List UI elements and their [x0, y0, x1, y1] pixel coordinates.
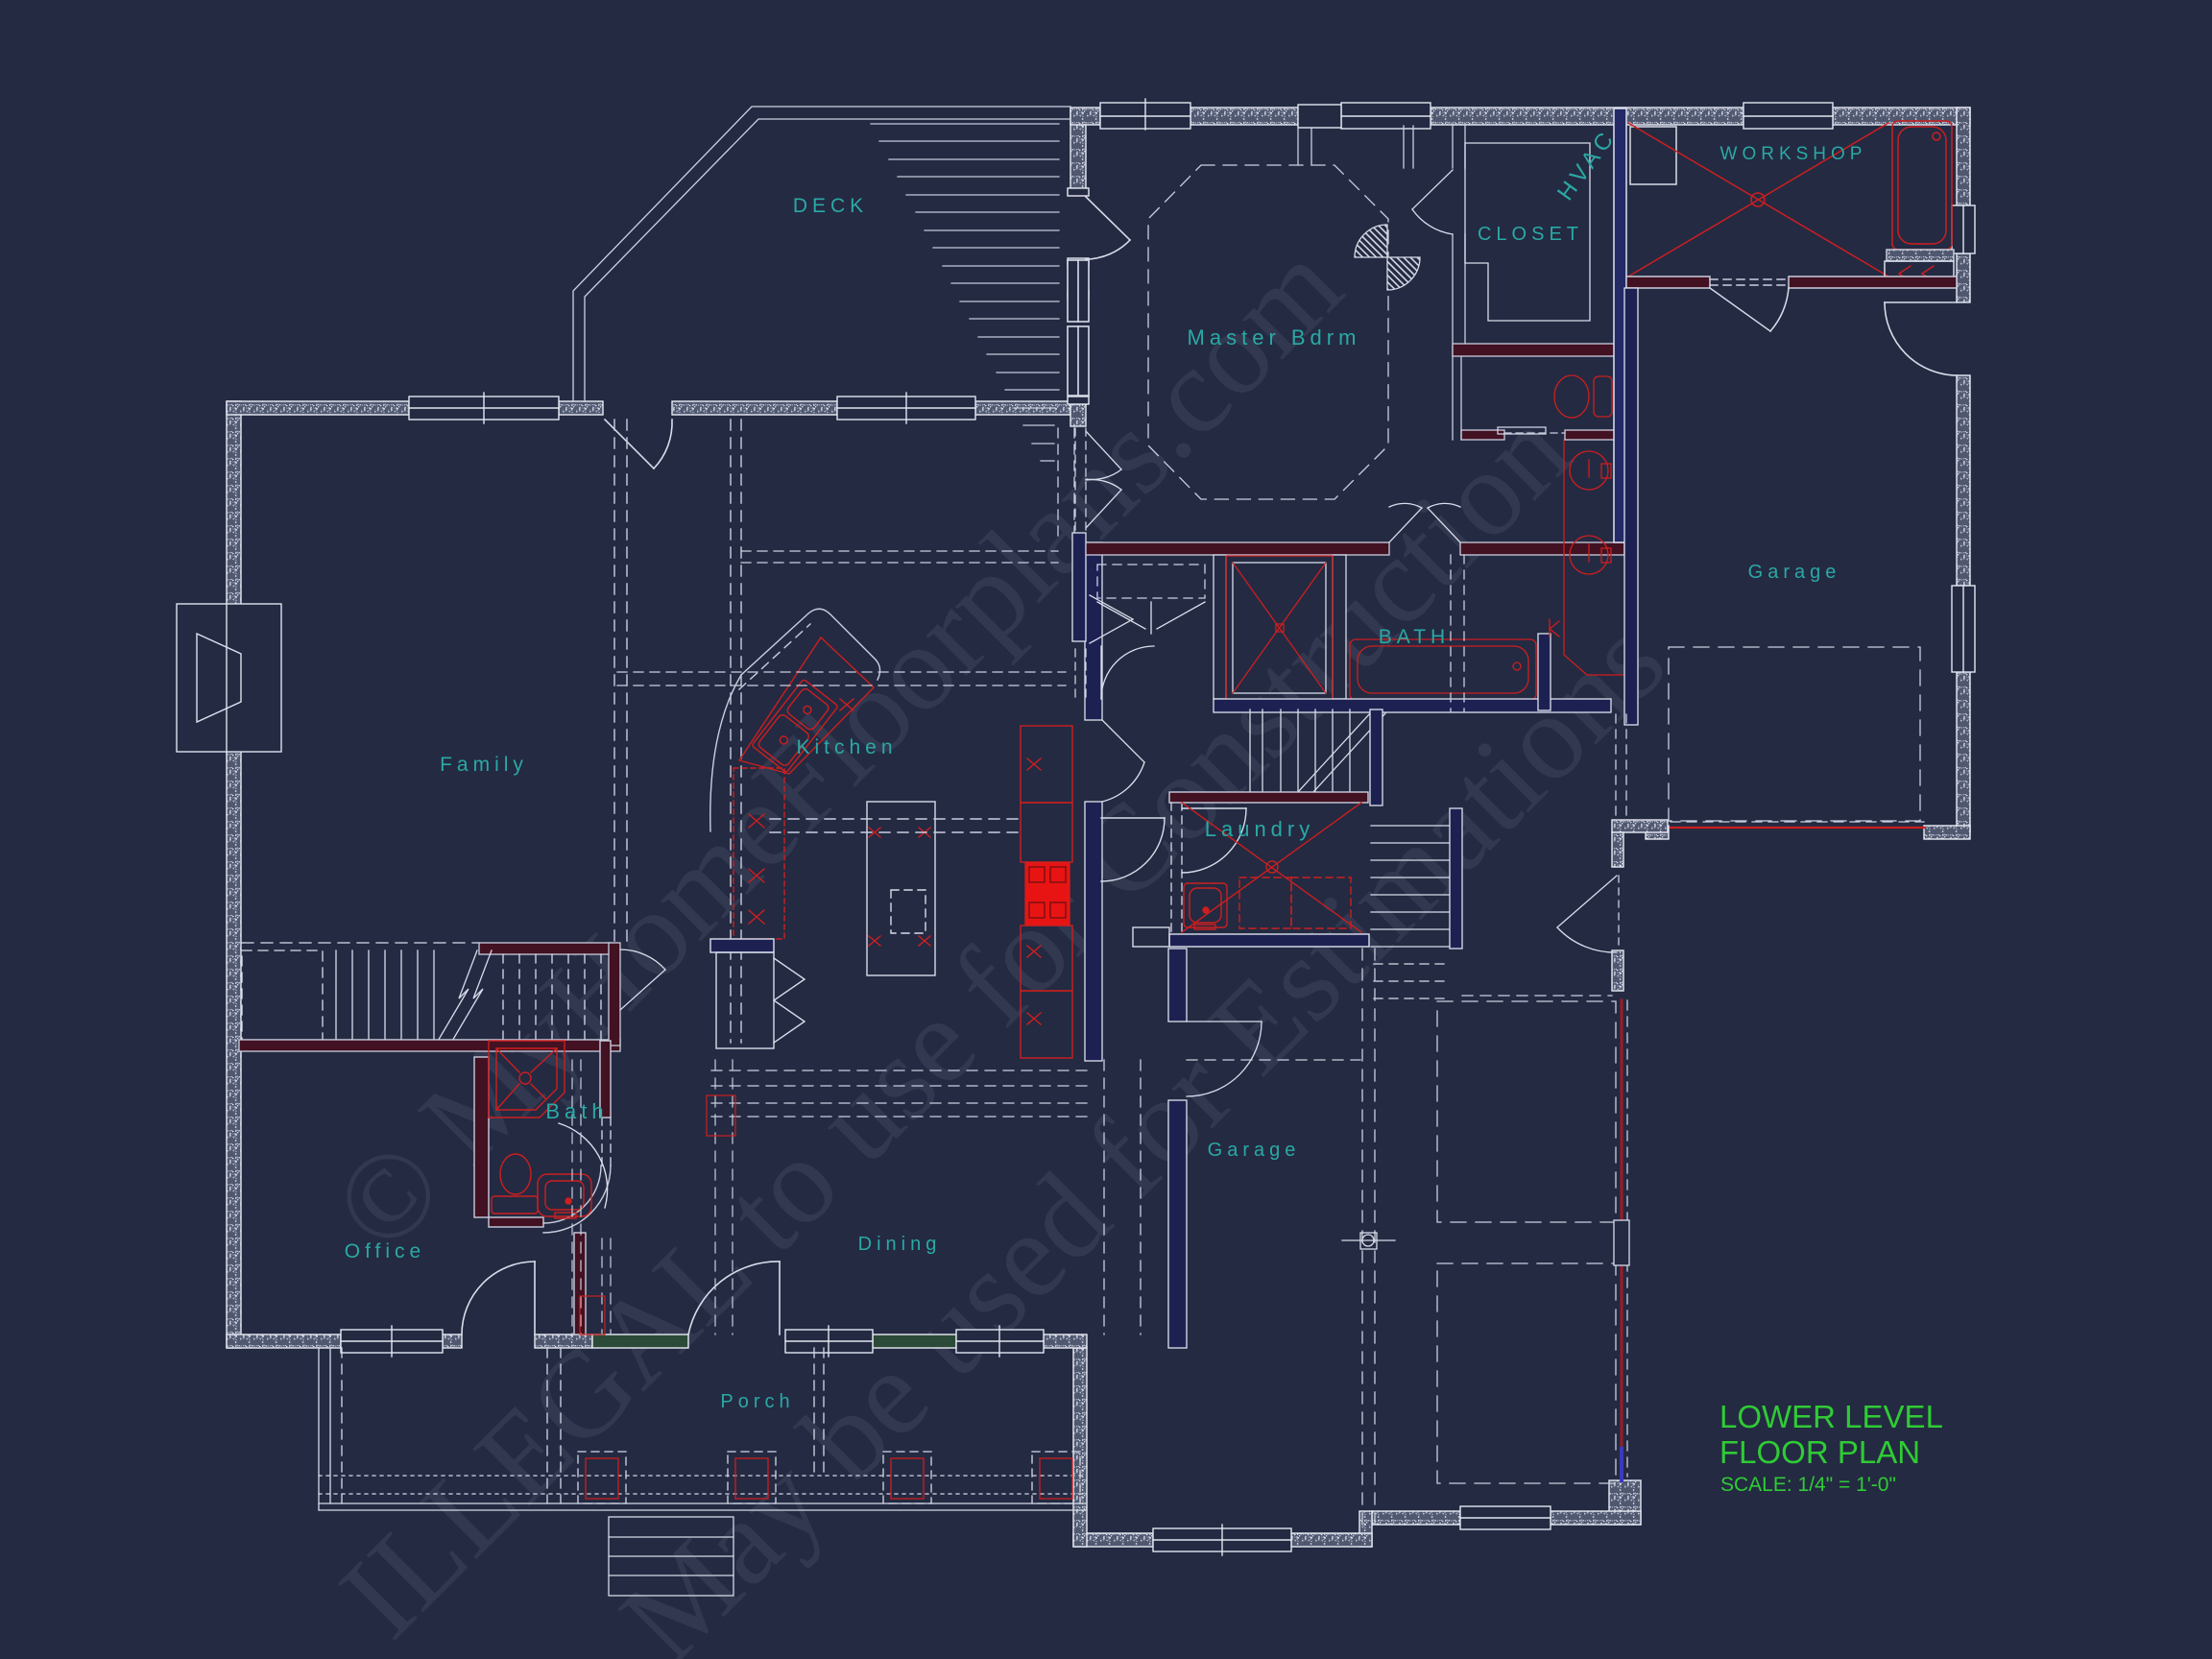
svg-text:Master Bdrm: Master Bdrm	[1188, 325, 1361, 349]
svg-text:LOWER LEVEL: LOWER LEVEL	[1719, 1399, 1943, 1434]
svg-text:FLOOR PLAN: FLOOR PLAN	[1719, 1434, 1920, 1470]
svg-text:Dining: Dining	[858, 1234, 942, 1255]
svg-text:Family: Family	[440, 754, 528, 776]
svg-text:SCALE: 1/4" = 1'-0": SCALE: 1/4" = 1'-0"	[1720, 1474, 1896, 1496]
svg-text:Bath: Bath	[545, 1099, 608, 1123]
svg-text:Garage: Garage	[1208, 1140, 1301, 1161]
svg-text:Porch: Porch	[720, 1391, 794, 1412]
svg-text:Garage: Garage	[1748, 562, 1841, 583]
svg-text:WORKSHOP: WORKSHOP	[1720, 144, 1867, 164]
svg-text:Laundry: Laundry	[1205, 817, 1315, 841]
svg-text:BATH: BATH	[1379, 626, 1450, 648]
svg-text:CLOSET: CLOSET	[1478, 224, 1583, 245]
svg-text:Kitchen: Kitchen	[796, 736, 897, 758]
svg-text:DECK: DECK	[793, 195, 868, 217]
svg-text:Office: Office	[345, 1240, 425, 1262]
